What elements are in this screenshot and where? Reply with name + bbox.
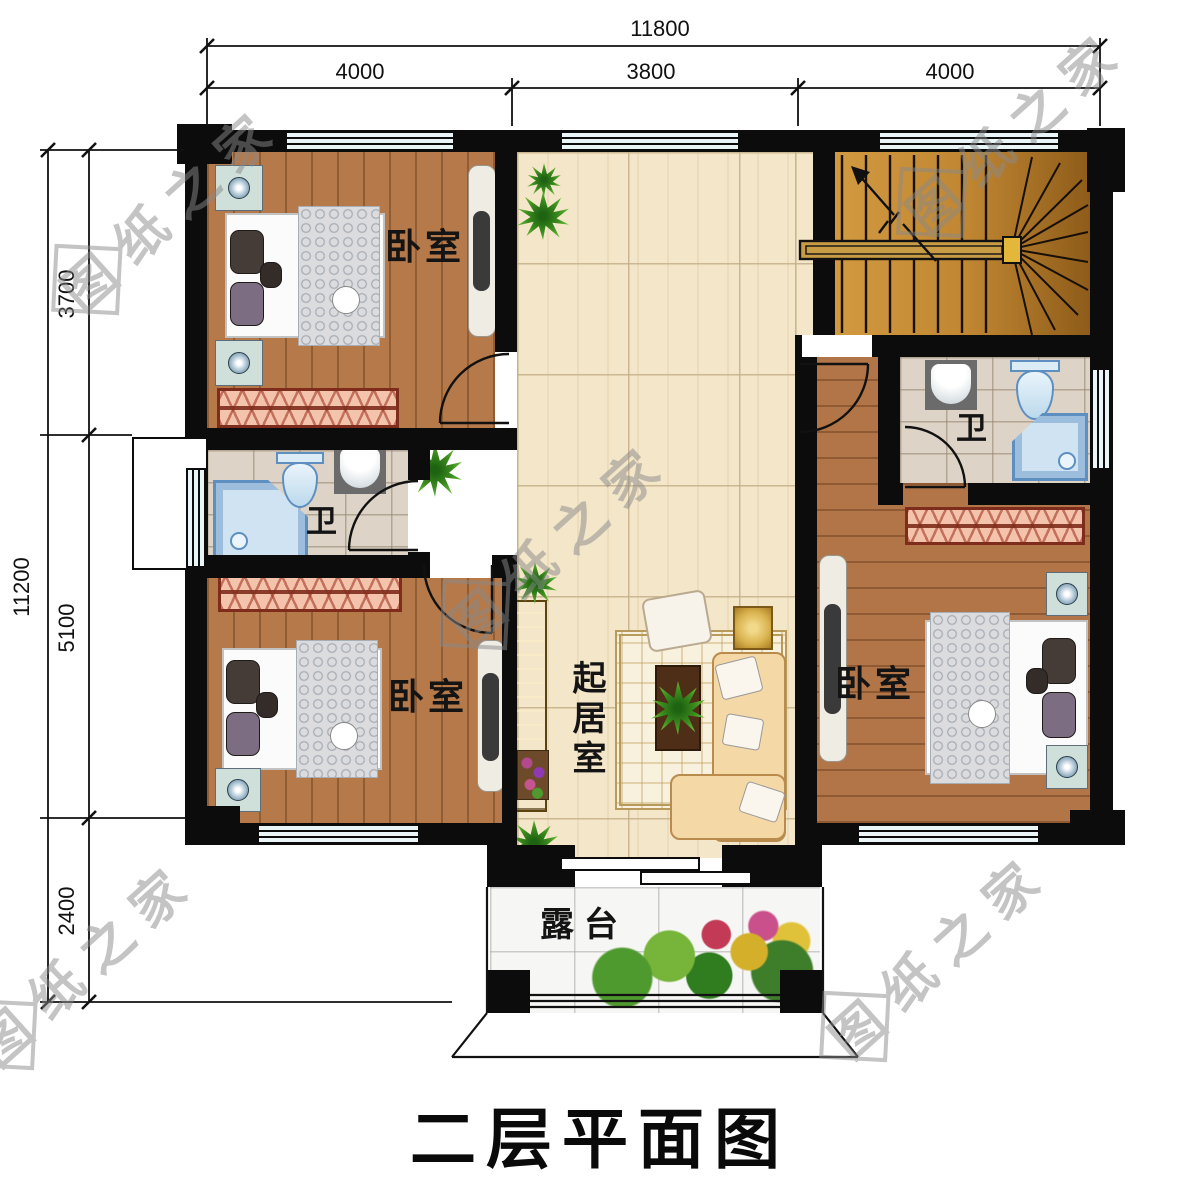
plant-icon (651, 681, 705, 735)
bedroom1-quilt (298, 206, 380, 346)
bedroom2-quilt (296, 640, 378, 778)
wall-outer-right (1090, 130, 1113, 845)
terrace-sliding-door-leaf-1 (560, 857, 700, 871)
bedroom2-dresser (477, 640, 505, 792)
bedroom1-pillow-2 (230, 282, 264, 326)
bedroom3-pillow-2 (1042, 692, 1076, 738)
wall-bathR-bottom-left (878, 483, 903, 505)
stair-stringer (813, 152, 835, 335)
hall-window (560, 131, 740, 151)
bedroom2-wardrobe (218, 572, 402, 612)
bathL-window (186, 468, 206, 568)
pillar-bottom-right (1070, 810, 1125, 845)
dim-top-seg-2: 3800 (507, 59, 795, 85)
bedroom3-nightstand-bottom (1046, 745, 1088, 789)
bedroom3-nightstand-top (1046, 572, 1088, 616)
bedroom1-dresser (468, 165, 496, 337)
bedroom2-bed-tray (330, 722, 358, 750)
lamp-icon (1056, 583, 1078, 605)
dim-top-total: 11800 (460, 16, 860, 42)
wall-stair-bottom-right (872, 335, 1113, 357)
bedroom3-quilt (930, 612, 1010, 784)
wall-stair-bottom-left (795, 335, 802, 357)
bedroom2-pillow-2 (226, 712, 260, 756)
watermark: 图 纸之家 (804, 832, 1064, 1076)
bathroom-right-label: 卫 (956, 403, 991, 448)
dim-top-seg-1: 4000 (210, 59, 510, 85)
wall-bathR-bottom-right (968, 483, 1090, 505)
sink-basin (931, 364, 971, 404)
shower-drain-icon (1058, 452, 1076, 470)
pillar-bottom-left (185, 806, 240, 845)
dim-left-total: 11200 (9, 487, 35, 687)
bedroom1-pillow-1 (230, 230, 264, 274)
living-room-label: 起居室 (562, 660, 611, 780)
bedroom1-bed-tray (332, 286, 360, 314)
pillar-top-right (1087, 128, 1125, 192)
watermark-diamond-icon: 图 (819, 990, 890, 1061)
bedroom3-bed-tray (968, 700, 996, 728)
sink-basin (340, 448, 380, 488)
wall-bedroom1-hall-upper (495, 130, 517, 352)
watermark-diamond-icon: 图 (896, 166, 967, 237)
bathroom-left-label: 卫 (306, 496, 341, 541)
lamp-icon (228, 352, 250, 374)
bedroom1-nightstand-bottom (215, 340, 263, 386)
wall-living-right (795, 357, 817, 858)
watermark-diamond-icon: 图 (0, 998, 37, 1069)
dim-left-seg-2: 5100 (54, 553, 80, 703)
bedroom1-window (285, 131, 455, 151)
bedroom2-pillow-1 (226, 660, 260, 704)
bedroom3-cushion (1026, 668, 1048, 694)
terrace-label: 露台 (540, 897, 628, 946)
bedroom3-wardrobe (905, 507, 1085, 545)
bedroom1-wardrobe (217, 388, 399, 428)
bedroom1-label: 卧室 (385, 218, 465, 270)
wall-bedroom1-bottom (185, 428, 517, 450)
living-coffee-table (655, 665, 701, 751)
dresser-mirror (473, 211, 490, 291)
sofa-pillow (722, 713, 765, 751)
watermark-diamond-icon: 图 (439, 578, 510, 649)
dresser-mirror (482, 673, 499, 761)
lamp-icon (227, 779, 249, 801)
terrace-post-right (780, 970, 823, 1013)
terrace-post-left (487, 970, 530, 1013)
bedroom2-label: 卧室 (388, 668, 468, 720)
wall-bedroom2-top-left (185, 555, 424, 578)
bedroom3-label: 卧室 (835, 655, 915, 707)
living-armchair (641, 589, 713, 653)
bedroom1-cushion (260, 262, 282, 288)
living-side-table (733, 606, 773, 650)
drawing-title: 二层平面图 (0, 1086, 1200, 1182)
shower-drain-icon (230, 532, 248, 550)
watermark-diamond-icon: 图 (51, 243, 122, 314)
living-flower-box (517, 750, 549, 800)
lamp-icon (1056, 756, 1078, 778)
wall-bathL-right-upper (408, 450, 430, 480)
bathroom-left-sink (334, 444, 386, 494)
watermark: 图 纸之家 (0, 840, 211, 1084)
bedroom2-cushion (256, 692, 278, 718)
bedroom2-window (257, 824, 420, 844)
floor-plan-canvas: 卧室 卧室 卧室 卫 卫 起居室 露台 11800 4000 3800 4000… (0, 0, 1200, 1188)
terrace-sliding-door-leaf-2 (640, 871, 752, 885)
bathR-window (1091, 368, 1111, 470)
